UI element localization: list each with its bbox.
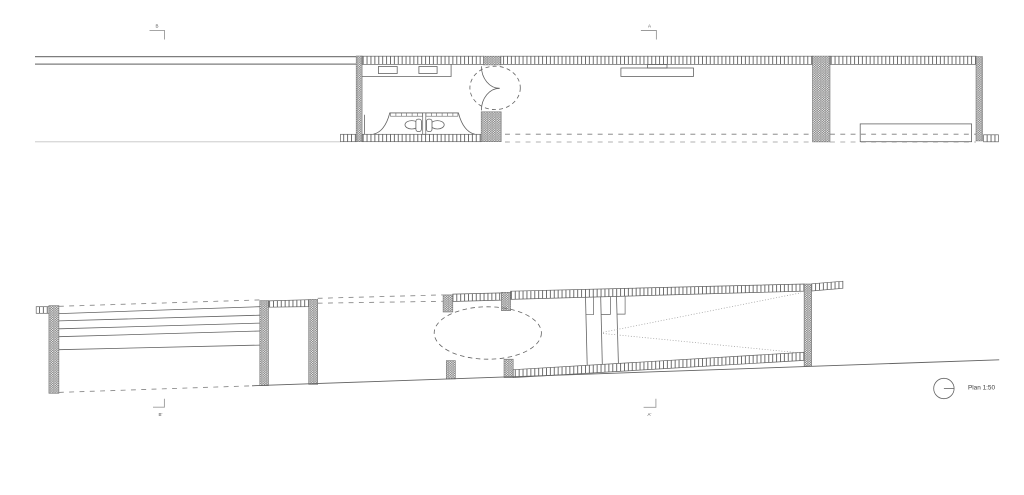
svg-text:A: A	[648, 24, 651, 29]
svg-text:B': B'	[159, 412, 163, 417]
svg-text:B: B	[156, 24, 159, 29]
svg-text:A': A'	[648, 412, 652, 417]
svg-text:Plan 1:50: Plan 1:50	[968, 384, 995, 391]
